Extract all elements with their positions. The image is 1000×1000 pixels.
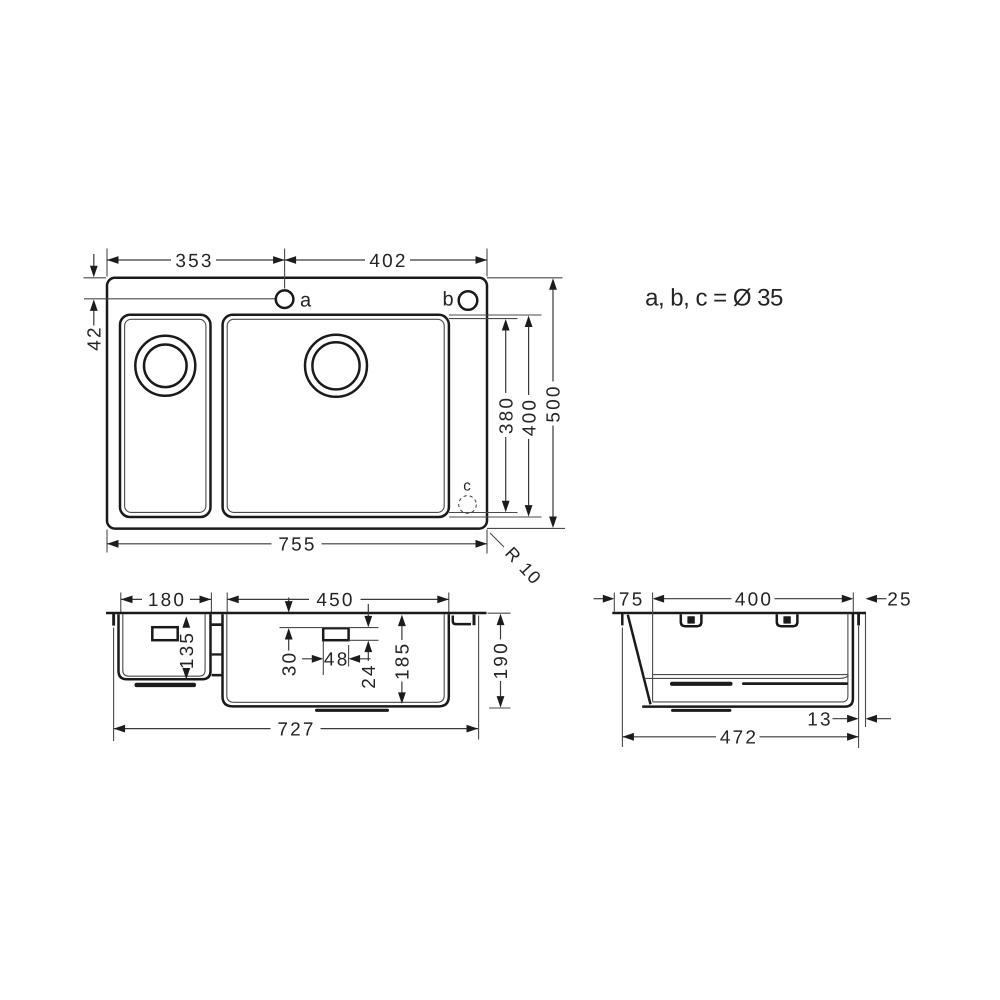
svg-text:c: c [463, 478, 471, 495]
svg-text:a: a [300, 290, 312, 312]
svg-text:a, b, c = Ø 35: a, b, c = Ø 35 [645, 285, 783, 312]
svg-text:400: 400 [519, 398, 540, 436]
svg-text:75: 75 [619, 590, 645, 611]
svg-text:42: 42 [85, 325, 106, 351]
svg-text:25: 25 [887, 590, 913, 611]
svg-text:450: 450 [316, 590, 354, 611]
svg-text:180: 180 [148, 590, 186, 611]
svg-text:402: 402 [369, 251, 407, 272]
svg-text:13: 13 [807, 710, 833, 731]
svg-text:353: 353 [175, 251, 213, 272]
svg-text:472: 472 [720, 728, 758, 749]
svg-text:190: 190 [491, 641, 512, 679]
svg-text:24: 24 [359, 663, 380, 689]
svg-text:727: 727 [277, 719, 315, 740]
svg-text:b: b [442, 289, 453, 311]
svg-text:48: 48 [324, 650, 350, 671]
svg-text:755: 755 [278, 535, 316, 556]
svg-text:380: 380 [496, 396, 517, 434]
svg-text:30: 30 [279, 651, 300, 677]
svg-text:185: 185 [393, 642, 414, 680]
svg-text:500: 500 [544, 384, 565, 422]
svg-text:135: 135 [177, 631, 198, 669]
svg-text:400: 400 [735, 590, 773, 611]
